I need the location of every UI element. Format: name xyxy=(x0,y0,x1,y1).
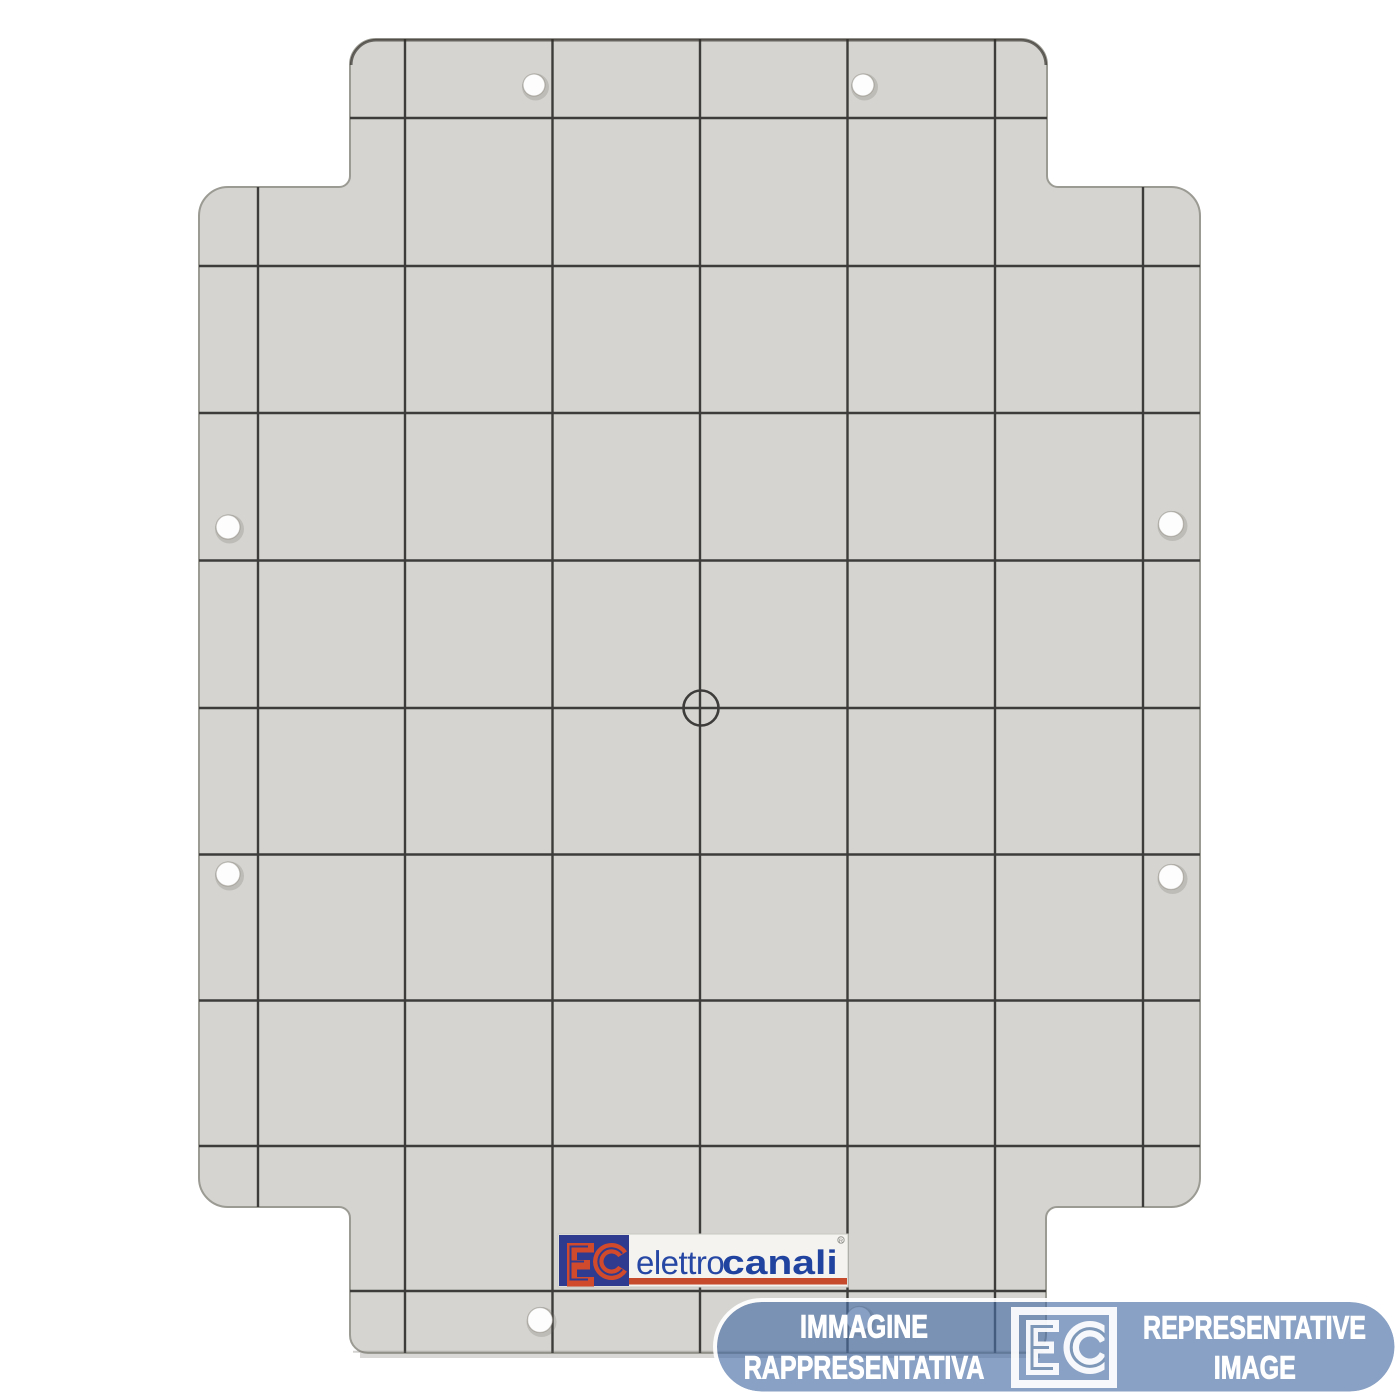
svg-text:RAPPRESENTATIVA: RAPPRESENTATIVA xyxy=(744,1350,985,1386)
svg-text:canali: canali xyxy=(722,1244,838,1282)
svg-text:elettro: elettro xyxy=(636,1244,724,1281)
svg-text:REPRESENTATIVE: REPRESENTATIVE xyxy=(1143,1310,1366,1346)
svg-text:R: R xyxy=(839,1238,843,1244)
svg-text:IMAGE: IMAGE xyxy=(1214,1350,1296,1386)
svg-text:IMMAGINE: IMMAGINE xyxy=(800,1309,928,1345)
